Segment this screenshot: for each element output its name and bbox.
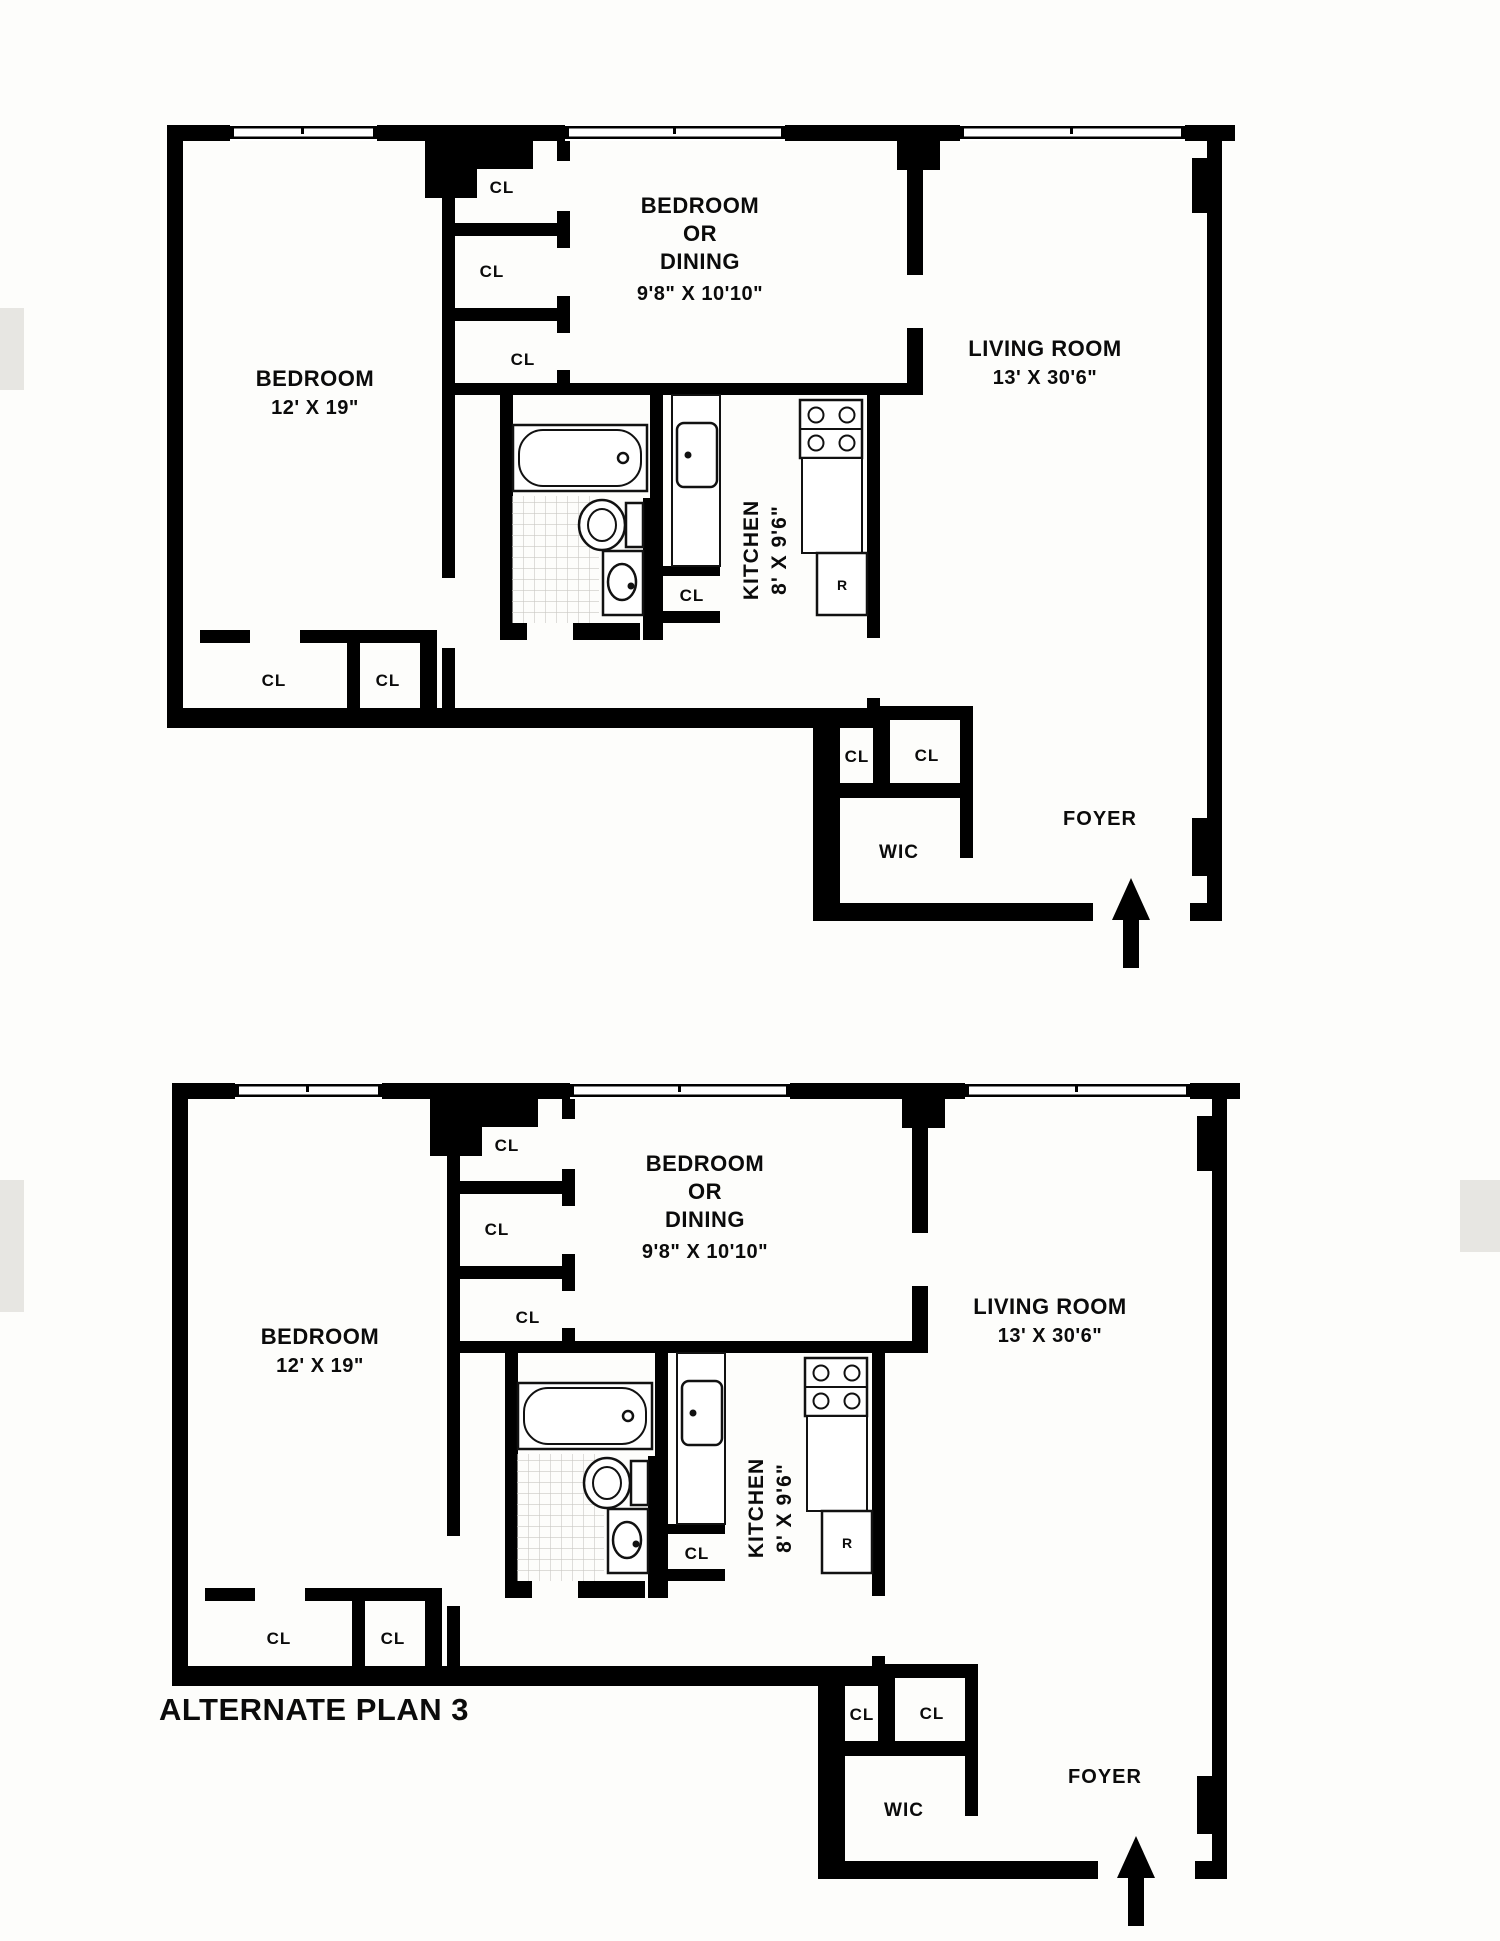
living-room-label: LIVING ROOM xyxy=(973,1294,1126,1319)
kitchen-sink xyxy=(672,395,720,566)
bathtub xyxy=(518,1383,652,1449)
vanity-sink xyxy=(608,1509,648,1573)
bedroom-or-dining-dims: 9'8" X 10'10" xyxy=(642,1241,768,1263)
vanity-sink xyxy=(603,551,643,615)
closet-column-label-1: CL xyxy=(495,1136,520,1155)
wic-label: WIC xyxy=(879,842,919,863)
scan-artifact xyxy=(1460,1180,1500,1252)
closet-column-label-2: CL xyxy=(485,1220,510,1239)
bedroom-or-dining-label-line1: BEDROOM xyxy=(641,193,759,218)
window-bedroom xyxy=(230,125,377,141)
bedroom-label: BEDROOM xyxy=(256,366,374,391)
kitchen-label: KITCHEN xyxy=(740,500,763,600)
bedroom-or-dining-dims: 9'8" X 10'10" xyxy=(637,283,763,305)
window-dining xyxy=(570,1083,790,1099)
floor-plan-1: R BEDROOM 12' X 19" BEDROOM OR DINING 9'… xyxy=(150,118,1240,968)
refrigerator: R xyxy=(822,1511,872,1573)
kitchen-closet-label: CL xyxy=(685,1544,710,1563)
bedroom-closet-label-2: CL xyxy=(381,1629,406,1648)
plan-caption: ALTERNATE PLAN 3 xyxy=(159,1692,469,1727)
toilet xyxy=(579,500,643,550)
kitchen-counter xyxy=(802,458,862,553)
bedroom-dims: 12' X 19" xyxy=(276,1355,364,1377)
foyer-closet-label-1: CL xyxy=(850,1705,875,1724)
window-living-room xyxy=(960,125,1185,141)
closet-column-label-1: CL xyxy=(490,178,515,197)
floor-plan-2-alternate: R BEDROOM 12' X 19" BEDROOM OR DINING 9'… xyxy=(155,1076,1245,1926)
window-dining xyxy=(565,125,785,141)
kitchen-label: KITCHEN xyxy=(745,1458,768,1558)
bedroom-or-dining-label-line2: OR xyxy=(688,1179,722,1204)
kitchen-closet-label: CL xyxy=(680,586,705,605)
wic-label: WIC xyxy=(884,1800,924,1821)
bedroom-closet-label-2: CL xyxy=(376,671,401,690)
kitchen-dims: 8' X 9'6" xyxy=(773,1463,796,1553)
toilet xyxy=(584,1458,648,1508)
living-room-dims: 13' X 30'6" xyxy=(998,1325,1103,1347)
scan-artifact xyxy=(0,1180,24,1312)
foyer-label: FOYER xyxy=(1063,808,1137,830)
refrigerator-label: R xyxy=(837,577,847,593)
stove xyxy=(805,1358,867,1416)
refrigerator-label: R xyxy=(842,1535,852,1551)
window-bedroom xyxy=(235,1083,382,1099)
window-living-room xyxy=(965,1083,1190,1099)
scan-artifact xyxy=(0,308,24,390)
living-room-dims: 13' X 30'6" xyxy=(993,367,1098,389)
bedroom-dims: 12' X 19" xyxy=(271,397,359,419)
closet-column-label-3: CL xyxy=(511,350,536,369)
kitchen-counter xyxy=(807,1416,867,1511)
foyer-closet-label-2: CL xyxy=(920,1704,945,1723)
bedroom-label: BEDROOM xyxy=(261,1324,379,1349)
bedroom-or-dining-label-line1: BEDROOM xyxy=(646,1151,764,1176)
stove xyxy=(800,400,862,458)
foyer-label: FOYER xyxy=(1068,1766,1142,1788)
kitchen-dims: 8' X 9'6" xyxy=(768,505,791,595)
bedroom-or-dining-label-line3: DINING xyxy=(665,1207,745,1232)
closet-column-label-3: CL xyxy=(516,1308,541,1327)
refrigerator: R xyxy=(817,553,867,615)
living-room-label: LIVING ROOM xyxy=(968,336,1121,361)
foyer-closet-label-2: CL xyxy=(915,746,940,765)
bathtub xyxy=(513,425,647,491)
foyer-closet-label-1: CL xyxy=(845,747,870,766)
bedroom-or-dining-label-line3: DINING xyxy=(660,249,740,274)
floor-plan: R BEDROOM 12' X 19" BEDROOM OR DINING 9'… xyxy=(155,1076,1245,1926)
bedroom-or-dining-label-line2: OR xyxy=(683,221,717,246)
bedroom-closet-label-1: CL xyxy=(262,671,287,690)
bedroom-closet-label-1: CL xyxy=(267,1629,292,1648)
floor-plan: R BEDROOM 12' X 19" BEDROOM OR DINING 9'… xyxy=(150,118,1240,968)
closet-column-label-2: CL xyxy=(480,262,505,281)
kitchen-sink xyxy=(677,1353,725,1524)
entry-arrow-icon xyxy=(1117,1836,1155,1926)
entry-arrow-icon xyxy=(1112,878,1150,968)
